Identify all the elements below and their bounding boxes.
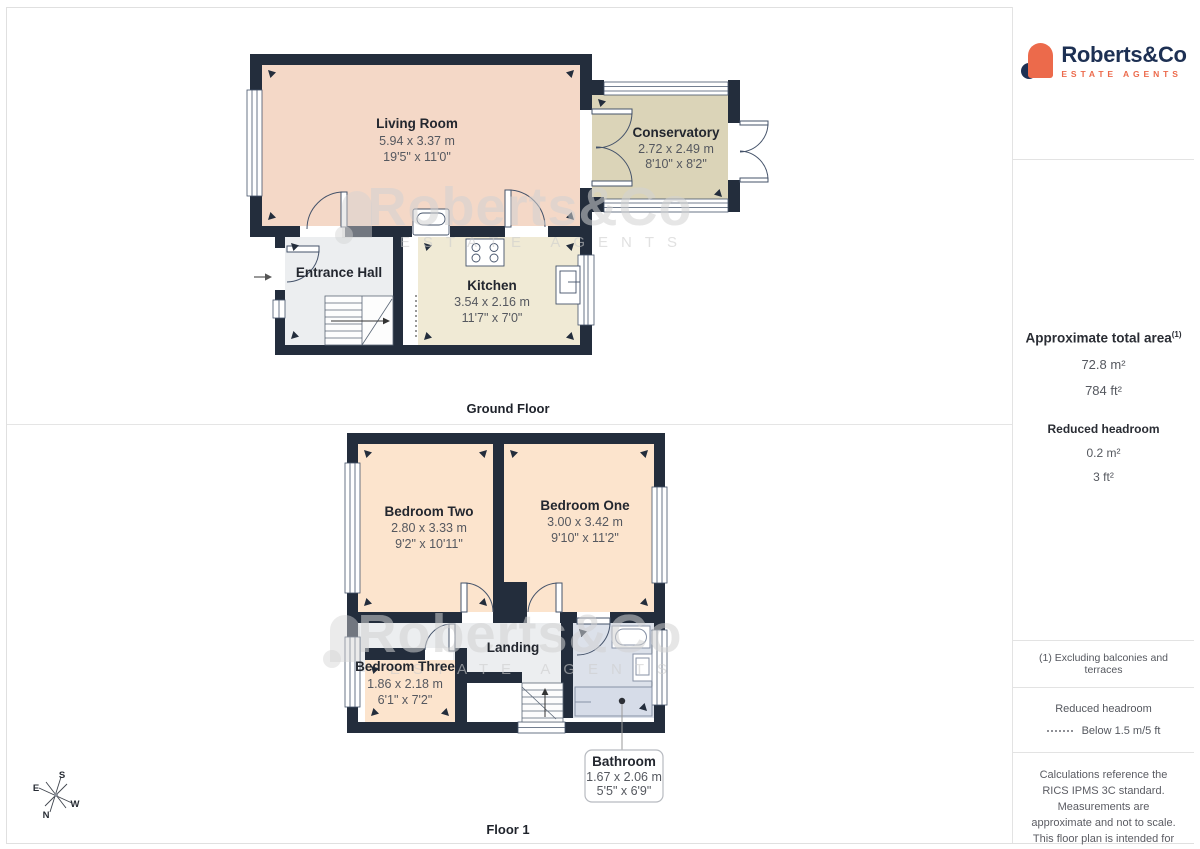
legend-row: Below 1.5 m/5 ft [1013,725,1194,737]
compass-south: S [59,770,65,781]
landing-name: Landing [487,640,540,655]
living-room-metric: 5.94 x 3.37 m [379,134,455,148]
footnote-text: (1) Excluding balconies and terraces [1021,652,1186,676]
total-area-footnote-marker: (1) [1172,330,1182,339]
brand-section: Roberts&Co ESTATE AGENTS [1013,43,1194,160]
bedroom-two-name: Bedroom Two [385,504,474,519]
footnote-section: (1) Excluding balconies and terraces [1013,641,1194,688]
total-area-title-text: Approximate total area [1025,331,1171,346]
bedroom-three-imperial: 6'1" x 7'2" [378,693,433,707]
bedroom-one-name: Bedroom One [540,498,630,513]
bedroom-one-imperial: 9'10" x 11'2" [551,531,619,545]
reduced-headroom-title: Reduced headroom [1013,422,1194,436]
brand-name: Roberts&Co [1061,44,1186,66]
bathroom-metric: 1.67 x 2.06 m [586,770,662,784]
logo-arch-shape [1028,43,1053,78]
ground-floor-label: Ground Floor [466,401,549,416]
watermark-brand-text: Roberts&Co [367,177,692,237]
area-summary-section: Approximate total area(1) 72.8 m² 784 ft… [1013,160,1194,641]
legend-title: Reduced headroom [1013,703,1194,715]
ground-floor-plan: Roberts&Co ESTATE AGENTS Living Room 5.9… [247,54,768,416]
kitchen-name: Kitchen [467,278,517,293]
total-area-title: Approximate total area(1) [1013,330,1194,346]
compass-icon: S E W N [33,770,80,821]
brand-logo-icon [1020,43,1053,79]
dotted-line-icon [1047,730,1073,732]
bedroom-one-metric: 3.00 x 3.42 m [547,515,623,529]
reduced-headroom-metric: 0.2 m² [1013,446,1194,460]
watermark-brand-text: Roberts&Co [357,604,682,664]
conservatory-metric: 2.72 x 2.49 m [638,142,714,156]
first-floor-stairs [522,683,563,722]
disclaimer-text: Calculations reference the RICS IPMS 3C … [1026,768,1181,849]
kitchen-imperial: 11'7" x 7'0" [462,311,523,325]
disclaimer-section: Calculations reference the RICS IPMS 3C … [1013,753,1194,849]
living-room-name: Living Room [376,116,458,131]
total-area-metric: 72.8 m² [1013,357,1194,372]
first-floor-plan: Roberts&Co ESTATE AGENTS Bathroom 1.67 x… [323,433,683,837]
bedroom-three-metric: 1.86 x 2.18 m [367,677,443,691]
callout-anchor-dot [619,698,625,704]
bathroom-imperial: 5'5" x 6'9" [597,784,652,798]
conservatory-name: Conservatory [632,125,720,140]
entrance-hall-name: Entrance Hall [296,265,382,280]
bathroom-callout: Bathroom 1.67 x 2.06 m 5'5" x 6'9" [585,750,663,802]
first-floor-label: Floor 1 [486,822,529,837]
bedroom-two-metric: 2.80 x 3.33 m [391,521,467,535]
total-area-imperial: 784 ft² [1013,383,1194,398]
compass-west: W [71,799,80,810]
compass-east: E [33,783,39,794]
bathroom-name: Bathroom [592,754,656,769]
reduced-headroom-imperial: 3 ft² [1013,470,1194,484]
legend-section: Reduced headroom Below 1.5 m/5 ft [1013,688,1194,753]
conservatory-imperial: 8'10" x 8'2" [645,157,707,171]
compass-north: N [43,810,50,821]
brand-tagline: ESTATE AGENTS [1061,69,1186,79]
bedroom-two-imperial: 9'2" x 10'11" [395,537,463,551]
bedroom-three-name: Bedroom Three [355,659,455,674]
sidebar: Roberts&Co ESTATE AGENTS Approximate tot… [1012,7,1194,843]
living-room-imperial: 19'5" x 11'0" [383,150,451,164]
entrance-arrow-icon [254,273,272,280]
brand-logo-text: Roberts&Co ESTATE AGENTS [1061,44,1186,79]
floorplan-page: Roberts&Co ESTATE AGENTS Living Room 5.9… [0,0,1200,849]
watermark-tagline-text: ESTATE AGENTS [400,234,690,251]
legend-value: Below 1.5 m/5 ft [1082,725,1161,737]
brand-logo: Roberts&Co ESTATE AGENTS [1013,43,1194,79]
ground-floor-stairs [325,296,393,345]
kitchen-metric: 3.54 x 2.16 m [454,295,530,309]
